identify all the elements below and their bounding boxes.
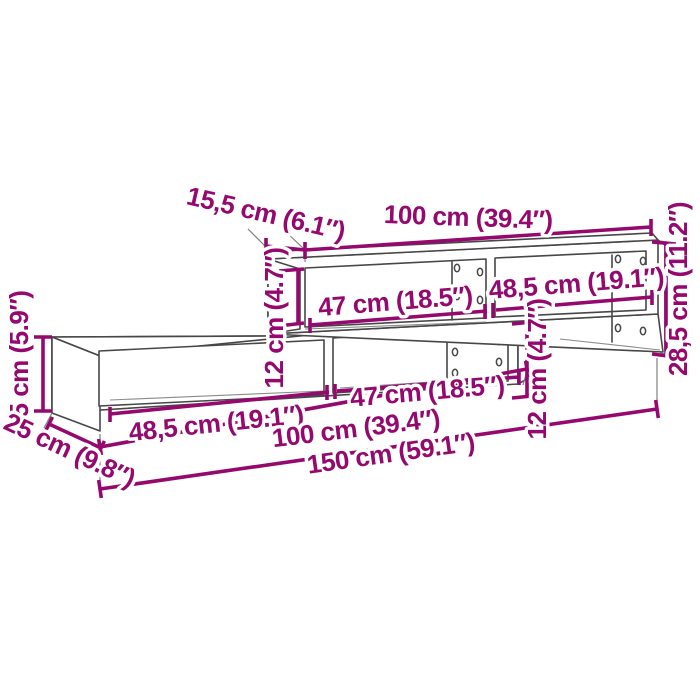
- screw-hole: [477, 268, 482, 276]
- screw-hole: [640, 327, 645, 335]
- dim-left-height: [34, 337, 52, 411]
- label-top-width: 100 cm (39.4″): [383, 199, 553, 235]
- label-top-depth: 15,5 cm (6.1″): [184, 180, 348, 246]
- screw-hole: [477, 296, 482, 304]
- screw-hole: [496, 358, 501, 366]
- screw-hole: [452, 348, 457, 356]
- label-upper-inner-height: 12 cm (4.7″): [259, 248, 289, 389]
- product-dimension-diagram: 15,5 cm (6.1″) 100 cm (39.4″) 28,5 cm (1…: [0, 0, 700, 700]
- screw-hole: [615, 324, 620, 332]
- label-lower-inner-height: 12 cm (4.7″): [522, 299, 552, 440]
- label-right-total-height: 28,5 cm (11.2″): [663, 202, 693, 376]
- screw-hole: [615, 255, 620, 263]
- screw-hole: [454, 264, 459, 272]
- diagram-canvas: 15,5 cm (6.1″) 100 cm (39.4″) 28,5 cm (1…: [0, 0, 700, 700]
